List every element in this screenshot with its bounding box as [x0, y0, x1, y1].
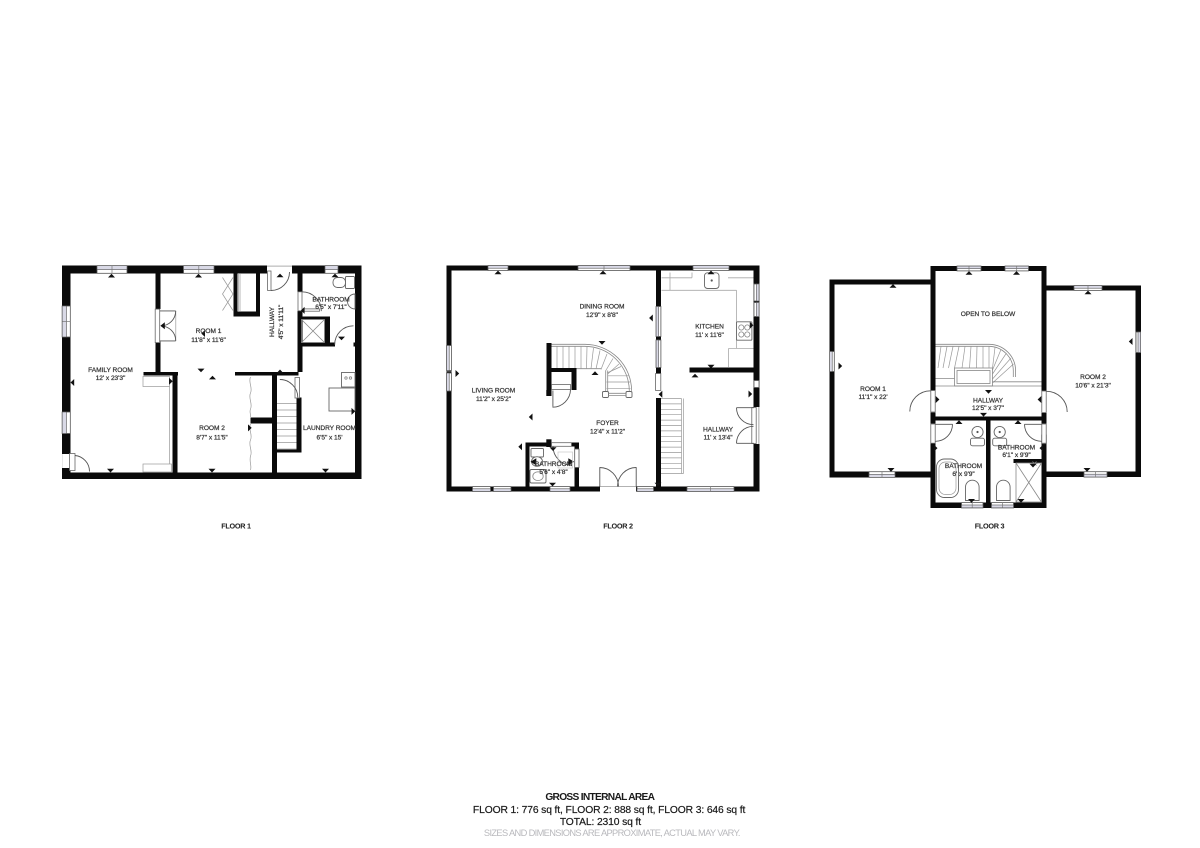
svg-text:HALLWAY: HALLWAY	[703, 427, 734, 434]
svg-text:FLOOR 2: FLOOR 2	[603, 522, 633, 531]
svg-text:FLOOR 1: 776 sq ft, FLOOR 2: 8: FLOOR 1: 776 sq ft, FLOOR 2: 888 sq ft, …	[473, 805, 746, 816]
svg-text:KITCHEN: KITCHEN	[695, 324, 724, 331]
svg-text:12'9" x 8'8": 12'9" x 8'8"	[586, 312, 619, 319]
svg-text:ROOM 1: ROOM 1	[196, 328, 222, 335]
svg-text:6' x 9'9": 6' x 9'9"	[952, 471, 975, 478]
svg-text:12'5" x 3'7": 12'5" x 3'7"	[972, 405, 1005, 412]
svg-text:11' x 13'4": 11' x 13'4"	[703, 435, 733, 442]
svg-text:OPEN TO BELOW: OPEN TO BELOW	[961, 311, 1016, 318]
svg-text:4'5" x 11'11": 4'5" x 11'11"	[278, 304, 285, 339]
svg-text:8'7" x 11'5": 8'7" x 11'5"	[196, 435, 228, 442]
svg-text:11'2" x 25'2": 11'2" x 25'2"	[476, 396, 512, 403]
svg-text:ROOM 2: ROOM 2	[199, 425, 225, 432]
svg-text:11' x 11'6": 11' x 11'6"	[695, 332, 724, 339]
svg-text:BATHROOM: BATHROOM	[998, 445, 1035, 452]
svg-text:10'6" x 21'3": 10'6" x 21'3"	[1075, 383, 1111, 390]
svg-text:FLOOR 3: FLOOR 3	[975, 522, 1005, 531]
svg-text:LAUNDRY ROOM: LAUNDRY ROOM	[303, 425, 356, 432]
svg-text:5'6" x 4'8": 5'6" x 4'8"	[539, 469, 568, 476]
svg-text:DINING ROOM: DINING ROOM	[580, 304, 625, 311]
svg-text:FOYER: FOYER	[596, 420, 619, 427]
svg-text:FAMILY ROOM: FAMILY ROOM	[88, 367, 133, 374]
svg-text:6'1" x 9'9": 6'1" x 9'9"	[1002, 452, 1031, 459]
svg-text:11'1" x 22': 11'1" x 22'	[858, 394, 887, 401]
svg-text:12' x 23'3": 12' x 23'3"	[96, 375, 126, 382]
svg-text:FLOOR 1: FLOOR 1	[221, 522, 251, 531]
svg-text:BATHROOM: BATHROOM	[535, 461, 572, 468]
svg-text:HALLWAY: HALLWAY	[973, 398, 1004, 405]
svg-text:ROOM 2: ROOM 2	[1080, 374, 1106, 381]
svg-text:SIZES AND DIMENSIONS ARE APPRO: SIZES AND DIMENSIONS ARE APPROXIMATE, AC…	[484, 828, 740, 838]
svg-text:ROOM 1: ROOM 1	[860, 386, 886, 393]
svg-text:LIVING ROOM: LIVING ROOM	[472, 388, 515, 395]
svg-text:BATHROOM: BATHROOM	[312, 297, 349, 304]
svg-text:6'5" x 7'11": 6'5" x 7'11"	[315, 304, 347, 311]
svg-text:11'8" x 11'6": 11'8" x 11'6"	[191, 337, 226, 344]
svg-text:GROSS INTERNAL AREA: GROSS INTERNAL AREA	[545, 792, 655, 803]
svg-text:BATHROOM: BATHROOM	[945, 463, 982, 470]
svg-text:6'5" x 15': 6'5" x 15'	[317, 435, 343, 442]
svg-text:TOTAL: 2310 sq ft: TOTAL: 2310 sq ft	[560, 817, 641, 828]
svg-text:12'4" x 11'2": 12'4" x 11'2"	[590, 429, 626, 436]
svg-text:HALLWAY: HALLWAY	[269, 306, 276, 337]
